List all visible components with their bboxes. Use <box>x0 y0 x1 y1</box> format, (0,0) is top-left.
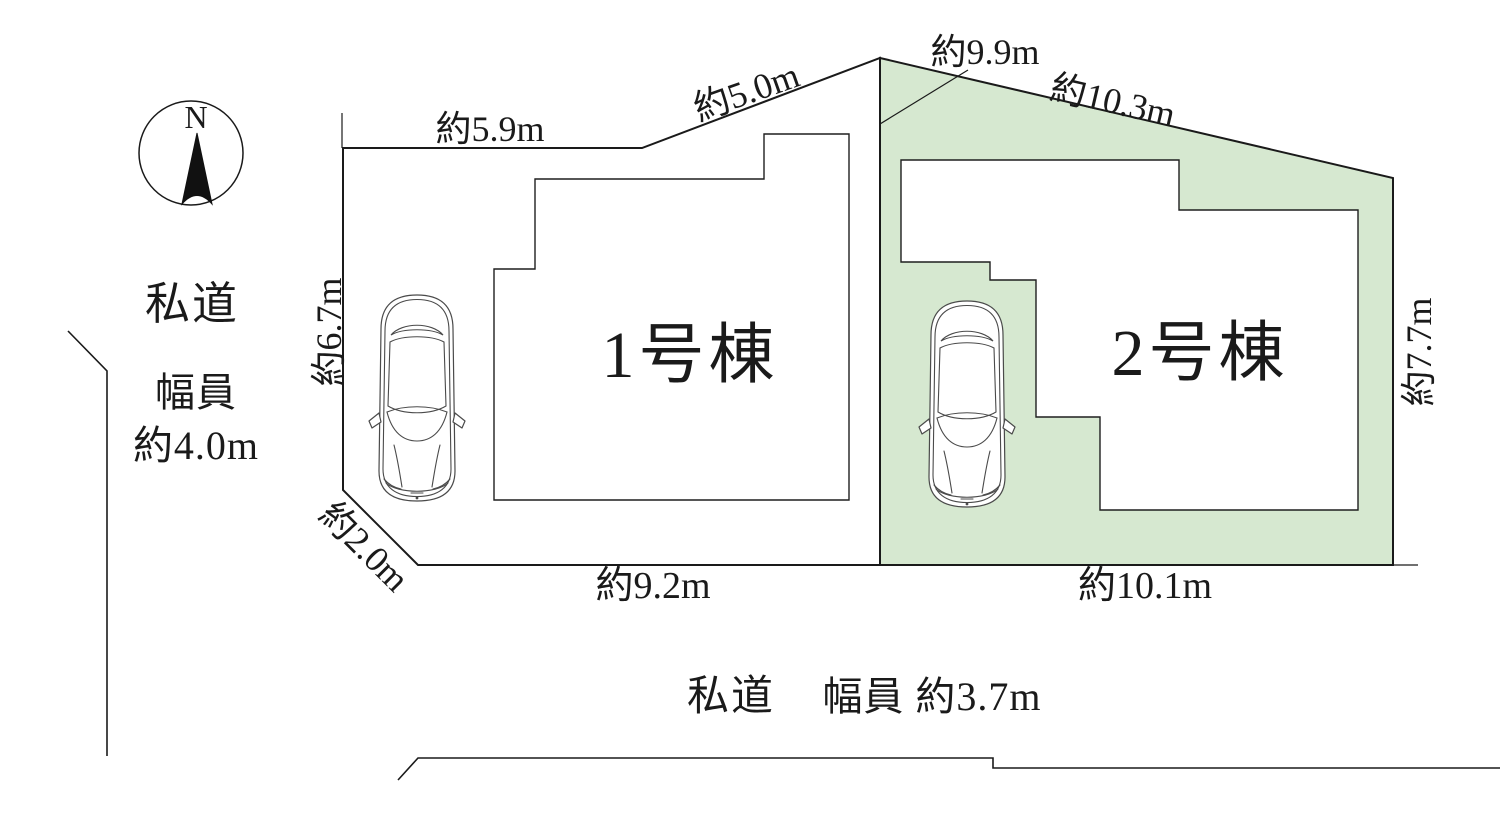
dim-lot2-left-boundary: 約9.9m <box>930 32 1039 72</box>
compass-north-label: N <box>184 99 207 135</box>
site-plan-page: N 約5.9m 約5.0m 約6.7m 約2.0m 約9.2m 約9.9m 約1… <box>0 0 1500 817</box>
north-arrow-icon <box>182 133 212 204</box>
left-road-name: 私道 <box>145 279 239 329</box>
site-plan-drawing: N 約5.9m 約5.0m 約6.7m 約2.0m 約9.2m 約9.9m 約1… <box>0 0 1500 817</box>
bottom-road-edge-line <box>398 758 1500 780</box>
car-1-icon <box>369 295 465 501</box>
lot-1-label: 1号棟 <box>602 319 779 392</box>
north-compass: N <box>139 99 243 205</box>
dim-lot1-left: 約6.7m <box>309 277 349 386</box>
lot-2-label: 2号棟 <box>1112 317 1289 390</box>
left-road-edge-line <box>68 331 107 756</box>
dim-lot2-bottom: 約10.1m <box>1078 565 1212 607</box>
bottom-road-name: 私道 <box>687 674 775 720</box>
car-2-icon <box>919 301 1015 507</box>
dim-lot1-top: 約5.9m <box>435 109 544 149</box>
building-1-footprint <box>494 134 849 500</box>
left-road-width-value: 約4.0m <box>133 423 259 468</box>
left-road-width-label: 幅員 <box>155 370 237 415</box>
dim-lot1-bottom: 約9.2m <box>595 565 710 607</box>
bottom-road-width-value: 幅員 約3.7m <box>822 674 1041 719</box>
dim-lot2-right: 約7.7m <box>1399 297 1439 406</box>
